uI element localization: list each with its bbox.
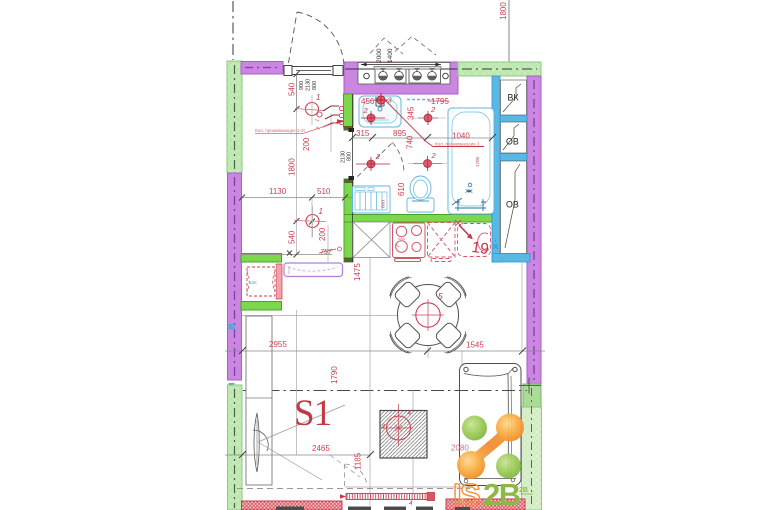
svg-text:315: 315 xyxy=(356,129,370,138)
svg-text:200: 200 xyxy=(302,137,311,151)
svg-text:2465: 2465 xyxy=(312,444,330,453)
svg-text:Кол. проживающих 3: Кол. проживающих 3 xyxy=(435,142,480,147)
svg-text:2B: 2B xyxy=(519,487,528,494)
svg-text:ОВ: ОВ xyxy=(506,200,519,210)
svg-text:ОВ: ОВ xyxy=(506,137,519,147)
svg-text:610: 610 xyxy=(397,182,406,196)
svg-text:1130: 1130 xyxy=(269,187,287,196)
svg-text:2000: 2000 xyxy=(376,48,383,63)
svg-text:800: 800 xyxy=(347,152,353,161)
svg-text:Кол. проживающих 1-2t: Кол. проживающих 1-2t xyxy=(255,128,305,133)
svg-text:1040: 1040 xyxy=(452,132,470,141)
svg-text:740: 740 xyxy=(406,135,415,149)
svg-text:540: 540 xyxy=(288,230,297,244)
svg-text:2B: 2B xyxy=(483,477,520,510)
svg-text:2080: 2080 xyxy=(451,444,469,453)
svg-text:456: 456 xyxy=(361,97,375,106)
svg-text:200: 200 xyxy=(318,227,327,241)
svg-text:19: 19 xyxy=(470,239,489,258)
svg-text:1700: 1700 xyxy=(475,156,480,167)
svg-text:1400: 1400 xyxy=(387,48,394,63)
svg-text:800: 800 xyxy=(312,81,318,90)
svg-text:4: 4 xyxy=(407,408,411,417)
svg-text:2: 2 xyxy=(375,152,381,161)
svg-text:1: 1 xyxy=(316,93,320,102)
svg-text:600: 600 xyxy=(381,200,387,208)
svg-text:ВК: ВК xyxy=(508,93,520,103)
svg-text:900: 900 xyxy=(299,81,305,90)
svg-text:345: 345 xyxy=(407,106,416,120)
svg-text:1475: 1475 xyxy=(353,263,362,281)
svg-text:1790: 1790 xyxy=(330,366,339,384)
svg-text:1800: 1800 xyxy=(288,158,297,176)
svg-text:1545: 1545 xyxy=(466,341,484,350)
svg-text:1: 1 xyxy=(319,207,323,216)
svg-text:ШК: ШК xyxy=(250,280,257,285)
svg-text:1800: 1800 xyxy=(499,2,508,20)
svg-text:2: 2 xyxy=(431,151,437,160)
svg-text:S1: S1 xyxy=(294,393,331,434)
svg-text:IS: IS xyxy=(453,477,480,510)
svg-text:4: 4 xyxy=(381,422,385,431)
svg-text:510: 510 xyxy=(317,187,331,196)
svg-text:4: 4 xyxy=(409,500,413,507)
svg-text:2: 2 xyxy=(430,105,436,114)
svg-text:540: 540 xyxy=(288,82,297,96)
svg-text:5: 5 xyxy=(438,291,443,301)
svg-text:2130: 2130 xyxy=(306,79,312,91)
svg-text:2: 2 xyxy=(363,106,369,115)
svg-text:2955: 2955 xyxy=(269,340,287,349)
svg-text:1795: 1795 xyxy=(431,97,449,106)
